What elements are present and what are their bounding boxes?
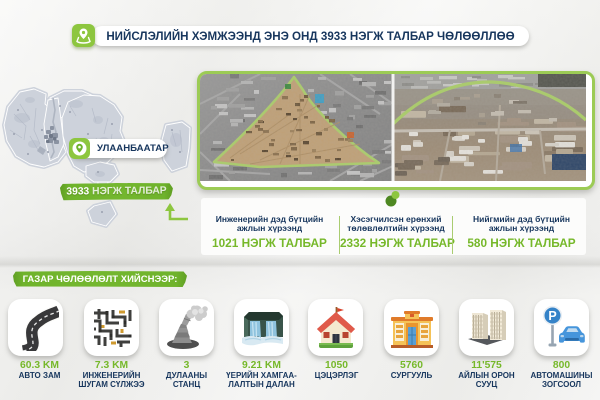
svg-text:P: P: [548, 309, 556, 323]
